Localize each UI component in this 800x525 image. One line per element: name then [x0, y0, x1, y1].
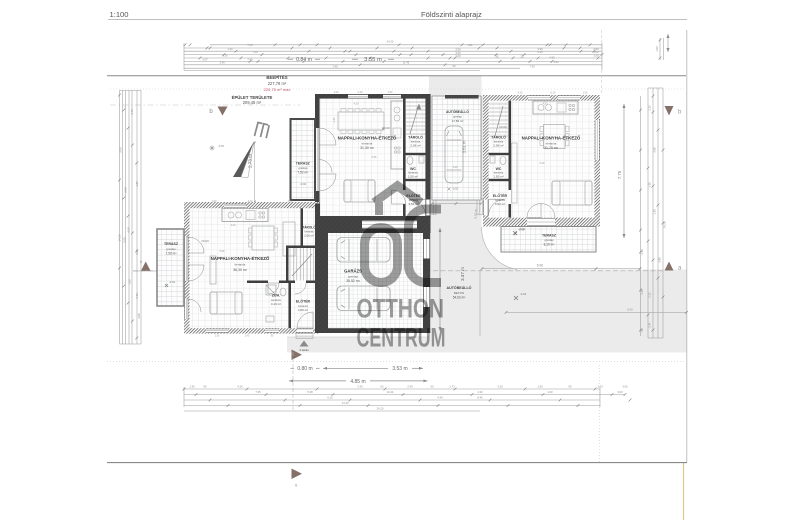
svg-text:GARÁZS: GARÁZS [344, 269, 362, 274]
svg-text:8,10 m: 8,10 m [474, 209, 478, 219]
svg-text:90: 90 [204, 384, 207, 388]
svg-text:AUTÓBEÁLLÓ: AUTÓBEÁLLÓ [446, 109, 469, 114]
svg-text:2.07: 2.07 [202, 58, 208, 62]
svg-text:3.51 m: 3.51 m [462, 140, 467, 153]
svg-text:o: o [295, 483, 298, 488]
svg-text:TÁROLÓ: TÁROLÓ [302, 225, 316, 230]
svg-text:24.20: 24.20 [387, 40, 394, 44]
svg-text:2.30: 2.30 [135, 293, 139, 299]
svg-text:3.00: 3.00 [455, 54, 461, 58]
svg-text:4.20: 4.20 [518, 92, 523, 95]
svg-text:4.20: 4.20 [334, 91, 339, 94]
svg-text:Földszinti alaprajz: Földszinti alaprajz [421, 10, 482, 19]
svg-text:7.30: 7.30 [529, 64, 535, 68]
svg-text:CENTRUM: CENTRUM [357, 323, 446, 353]
svg-text:1.50: 1.50 [537, 384, 543, 388]
svg-text:1,50 m²: 1,50 m² [408, 174, 418, 178]
svg-text:NAPPALI-KONYHA-ÉTKEZŐ: NAPPALI-KONYHA-ÉTKEZŐ [522, 136, 581, 141]
svg-text:kerámia: kerámia [546, 142, 557, 146]
svg-text:0.80 m: 0.80 m [297, 366, 312, 372]
svg-text:4.20: 4.20 [237, 384, 243, 388]
svg-text:7,52 m²: 7,52 m² [297, 171, 308, 175]
svg-text:ELŐTÉR: ELŐTÉR [493, 193, 508, 198]
svg-text:TERASZ: TERASZ [542, 234, 557, 238]
svg-text:-0.05: -0.05 [218, 144, 224, 148]
svg-text:4.20: 4.20 [354, 103, 359, 106]
svg-text:5.00: 5.00 [119, 147, 123, 153]
svg-text:7.20: 7.20 [252, 50, 258, 54]
svg-text:2.32: 2.32 [648, 292, 652, 298]
svg-text:4,10 m²: 4,10 m² [271, 302, 281, 306]
svg-text:1.50: 1.50 [583, 92, 588, 95]
svg-text:4.81: 4.81 [467, 43, 473, 47]
svg-text:greslap: greslap [348, 274, 358, 278]
svg-text:2.73 m: 2.73 m [248, 154, 253, 168]
svg-text:NAPPALI-KONYHA-ÉTKEZŐ: NAPPALI-KONYHA-ÉTKEZŐ [211, 256, 270, 261]
svg-text:4.90: 4.90 [537, 47, 543, 51]
svg-text:31,30 m²: 31,30 m² [360, 146, 375, 150]
svg-text:BETON: BETON [454, 291, 464, 295]
svg-text:54,63 m²: 54,63 m² [453, 296, 466, 300]
svg-text:NAPPALI-KONYHA-ÉTKEZŐ: NAPPALI-KONYHA-ÉTKEZŐ [338, 136, 397, 141]
svg-text:-0.02: -0.02 [452, 187, 458, 191]
svg-text:5.36: 5.36 [222, 54, 228, 58]
svg-text:14.40: 14.40 [342, 401, 349, 405]
svg-text:±0.00: ±0.00 [499, 125, 507, 129]
svg-text:TÁROLÓ: TÁROLÓ [491, 135, 506, 140]
svg-text:3.55 m: 3.55 m [364, 57, 382, 63]
svg-text:kerámia: kerámia [235, 263, 246, 267]
svg-text:4.75: 4.75 [130, 109, 134, 115]
svg-text:4.20: 4.20 [543, 103, 548, 106]
svg-text:3.50: 3.50 [593, 54, 599, 58]
svg-text:3.20: 3.20 [497, 384, 503, 388]
svg-text:5.38: 5.38 [307, 390, 313, 394]
svg-text:greslap: greslap [166, 247, 176, 251]
svg-text:4.50: 4.50 [549, 55, 555, 59]
svg-text:2.40: 2.40 [407, 384, 413, 388]
svg-text:90: 90 [640, 328, 644, 331]
svg-text:kerámia: kerámia [362, 142, 373, 146]
svg-text:6.10: 6.10 [327, 395, 333, 399]
svg-text:2.43: 2.43 [357, 384, 363, 388]
svg-text:1,50 m²: 1,50 m² [493, 174, 503, 178]
svg-text:AUTÓBEÁLLÓ: AUTÓBEÁLLÓ [447, 285, 472, 290]
svg-text:1.36: 1.36 [648, 182, 652, 188]
svg-text:3.50: 3.50 [455, 47, 461, 51]
svg-text:TERASZ: TERASZ [296, 162, 311, 166]
svg-text:-0.02: -0.02 [520, 292, 527, 296]
svg-text:1.50: 1.50 [215, 335, 220, 337]
svg-text:25: 25 [521, 55, 524, 59]
svg-text:ELŐTÉR: ELŐTÉR [296, 299, 311, 304]
svg-text:6.20: 6.20 [551, 92, 556, 95]
svg-text:3.50: 3.50 [593, 47, 599, 51]
svg-text:3.20: 3.20 [453, 166, 458, 169]
svg-text:1.36: 1.36 [653, 209, 657, 215]
svg-text:95: 95 [496, 55, 499, 59]
svg-text:7,50 m²: 7,50 m² [166, 252, 177, 256]
svg-text:5.00: 5.00 [123, 237, 127, 243]
svg-text:2.40: 2.40 [640, 289, 644, 295]
svg-text:WC: WC [410, 167, 416, 171]
svg-text:greslap: greslap [453, 115, 462, 119]
svg-text:-0.02: -0.02 [169, 280, 176, 284]
svg-text:1.30: 1.30 [189, 384, 195, 388]
svg-text:8.46: 8.46 [477, 395, 483, 399]
svg-text:90: 90 [453, 64, 456, 68]
svg-text:3,52 m²: 3,52 m² [495, 202, 505, 206]
svg-text:5.06: 5.06 [372, 156, 377, 159]
svg-text:4.00: 4.00 [127, 227, 131, 233]
svg-text:6.20: 6.20 [358, 91, 363, 94]
svg-text:TÁROLÓ: TÁROLÓ [408, 135, 423, 140]
svg-text:±0.00: ±0.00 [201, 239, 209, 243]
svg-text:8,19 m²: 8,19 m² [544, 243, 555, 247]
svg-text:31,70 m²: 31,70 m² [544, 146, 559, 150]
svg-text:35,52 m²: 35,52 m² [346, 279, 361, 283]
svg-text:227,78 m²: 227,78 m² [268, 81, 287, 86]
svg-text:7.75: 7.75 [617, 170, 622, 179]
svg-text:3.00: 3.00 [455, 51, 461, 55]
svg-text:14.20: 14.20 [663, 221, 667, 228]
svg-text:4.30: 4.30 [547, 390, 553, 394]
svg-text:225,75 m² max: 225,75 m² max [264, 87, 291, 92]
svg-text:4.62: 4.62 [553, 60, 559, 64]
svg-text:4.30: 4.30 [537, 50, 543, 54]
svg-text:5.00: 5.00 [627, 308, 633, 312]
svg-text:1.40: 1.40 [227, 47, 233, 51]
svg-text:14.20: 14.20 [118, 234, 122, 241]
svg-text:6.90: 6.90 [537, 264, 544, 268]
svg-text:7.40: 7.40 [247, 57, 253, 61]
svg-text:1.40: 1.40 [219, 61, 225, 65]
svg-text:±0.00: ±0.00 [382, 126, 390, 130]
svg-text:7.45: 7.45 [332, 64, 338, 68]
svg-text:17,84 m²: 17,84 m² [452, 119, 464, 123]
svg-text:1:100: 1:100 [109, 10, 128, 19]
svg-text:OTTHON: OTTHON [357, 294, 445, 324]
svg-text:6.00: 6.00 [124, 187, 128, 193]
svg-text:3.98: 3.98 [653, 147, 657, 153]
svg-text:1.80: 1.80 [128, 279, 132, 285]
svg-text:2.41: 2.41 [648, 322, 652, 328]
svg-text:3.03: 3.03 [617, 390, 623, 394]
svg-text:2,06 m²: 2,06 m² [493, 143, 503, 147]
svg-text:BEÉPÍTÉS: BEÉPÍTÉS [266, 75, 287, 80]
svg-text:4.40: 4.40 [437, 395, 443, 399]
svg-text:greslap: greslap [544, 238, 554, 242]
svg-text:6.20: 6.20 [540, 162, 545, 165]
svg-text:11.45: 11.45 [403, 61, 410, 65]
svg-text:7.40: 7.40 [247, 43, 253, 47]
svg-text:3.lakás: 3.lakás [299, 348, 309, 352]
svg-text:209,45 m²: 209,45 m² [243, 100, 262, 105]
svg-text:1.00: 1.00 [655, 46, 659, 52]
svg-text:3.98: 3.98 [658, 257, 662, 263]
svg-text:90: 90 [569, 384, 572, 388]
svg-text:1.40: 1.40 [333, 117, 336, 122]
svg-text:2,06 m²: 2,06 m² [410, 143, 420, 147]
svg-text:3.37 m: 3.37 m [460, 267, 465, 281]
svg-text:63: 63 [381, 384, 384, 388]
svg-text:63: 63 [431, 384, 434, 388]
svg-text:ZUH.: ZUH. [272, 294, 280, 298]
svg-text:1.73: 1.73 [449, 384, 455, 388]
svg-text:3.53 m: 3.53 m [392, 366, 407, 372]
svg-text:7.35: 7.35 [255, 390, 261, 394]
svg-text:4.20: 4.20 [231, 224, 236, 227]
svg-text:WC: WC [496, 167, 502, 171]
svg-text:2.40: 2.40 [640, 249, 644, 255]
svg-text:0.84 m: 0.84 m [296, 57, 312, 63]
svg-text:4.30: 4.30 [477, 390, 483, 394]
svg-text:3.00: 3.00 [622, 384, 628, 388]
svg-text:4,66 m²: 4,66 m² [298, 308, 308, 312]
svg-text:2.35: 2.35 [135, 249, 139, 255]
svg-text:36,30 m²: 36,30 m² [233, 268, 248, 272]
svg-text:10.44: 10.44 [387, 390, 394, 394]
svg-text:3.65: 3.65 [137, 313, 141, 319]
svg-text:5.98: 5.98 [220, 250, 225, 253]
svg-text:2.32: 2.32 [648, 105, 652, 111]
svg-text:-0.02: -0.02 [519, 227, 526, 231]
svg-text:TERASZ: TERASZ [164, 242, 179, 246]
svg-text:45: 45 [139, 260, 143, 263]
svg-text:4.85 m: 4.85 m [350, 379, 365, 385]
svg-text:3.00: 3.00 [593, 50, 599, 54]
svg-text:1.80: 1.80 [135, 181, 139, 187]
svg-text:2,06 m²: 2,06 m² [304, 234, 314, 238]
svg-text:1.73: 1.73 [597, 384, 603, 388]
svg-text:greslap: greslap [298, 166, 308, 170]
svg-text:1.50: 1.50 [388, 91, 393, 94]
svg-text:-0.02: -0.02 [300, 182, 307, 186]
svg-text:24.20: 24.20 [377, 407, 384, 411]
svg-text:2.40: 2.40 [245, 335, 250, 337]
